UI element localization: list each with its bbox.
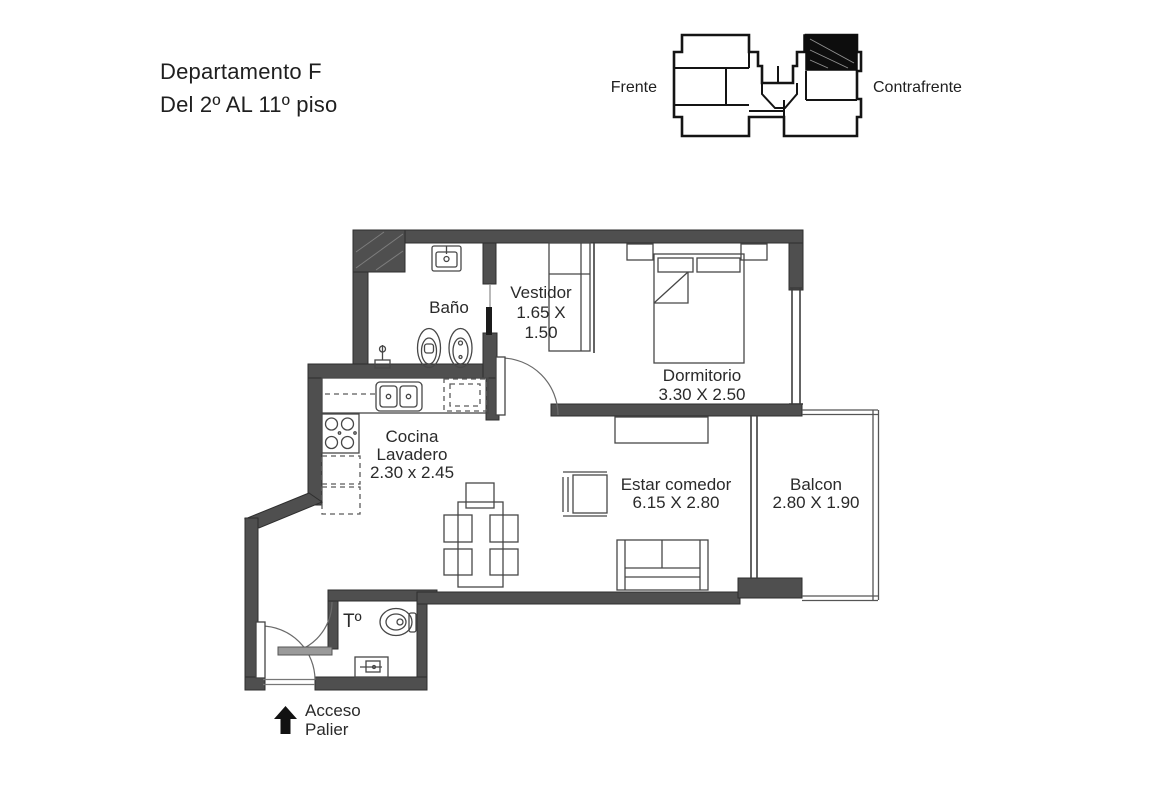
- estar-label: Estar comedor 6.15 X 2.80: [606, 476, 746, 512]
- wall-bath-kitchen: [308, 364, 490, 378]
- tv-cabinet: [615, 417, 708, 443]
- nightstand-left: [627, 244, 653, 260]
- dining-set: [444, 483, 518, 587]
- toilette-fixtures: [355, 609, 416, 678]
- cocina-name1: Cocina: [348, 428, 476, 446]
- toilette-wc-fixture: [380, 609, 416, 636]
- sofa: [617, 540, 708, 590]
- corridor-door-leaf: [496, 357, 505, 415]
- vestidor-dim1: 1.65 X: [489, 303, 593, 323]
- dining-chair: [490, 549, 518, 575]
- cocina-label: Cocina Lavadero 2.30 x 2.45: [348, 428, 476, 482]
- cabinet-dashed-2: [322, 487, 360, 514]
- corridor-door-arc: [501, 358, 558, 415]
- bed: [654, 254, 744, 363]
- wall-kitchen-left: [308, 378, 322, 505]
- access-line1: Acceso: [305, 701, 361, 720]
- access-label: Acceso Palier: [305, 701, 361, 739]
- toilette-label: Tº: [343, 611, 362, 633]
- nightstand-right: [741, 244, 767, 260]
- estar-name: Estar comedor: [606, 476, 746, 494]
- wall-bottom-toilette: [315, 677, 427, 690]
- toilet-fixture: [418, 329, 441, 368]
- entry-door-leaf: [256, 622, 265, 678]
- pillow-right: [697, 258, 740, 272]
- bidet-fixture: [449, 329, 472, 368]
- wall-toilette-left: [328, 601, 338, 649]
- wall-stub-bath-vestidor: [483, 243, 496, 284]
- dormitorio-dims: 3.30 X 2.50: [632, 385, 772, 404]
- wall-balcony-stub: [738, 578, 802, 598]
- bano-label: Baño: [409, 298, 489, 318]
- vestidor-label: Vestidor 1.65 X 1.50: [489, 283, 593, 343]
- wall-dorm-corner: [789, 243, 803, 290]
- kitchen-sink-fixture: [376, 382, 422, 411]
- balcon-dims: 2.80 X 1.90: [749, 494, 883, 512]
- vestidor-name: Vestidor: [489, 283, 593, 303]
- wall-dorm-estar: [551, 404, 802, 416]
- hatched-column: [353, 230, 405, 272]
- wall-toilette-right: [417, 601, 427, 677]
- entry-threshold: [263, 680, 315, 685]
- bath-sink-fixture: [432, 246, 461, 271]
- dining-chair: [466, 483, 494, 508]
- toilette-sink-fixture: [355, 657, 388, 677]
- wall-top: [353, 230, 803, 243]
- dormitorio-window: [789, 288, 803, 404]
- balcon-label: Balcon 2.80 X 1.90: [749, 476, 883, 512]
- access-line2: Palier: [305, 720, 361, 739]
- kitchen-counter: [322, 378, 488, 413]
- balcon-name: Balcon: [749, 476, 883, 494]
- dormitorio-name: Dormitorio: [632, 366, 772, 385]
- dormitorio-label: Dormitorio 3.30 X 2.50: [632, 366, 772, 404]
- access-arrow-icon: [274, 706, 297, 734]
- cocina-name2: Lavadero: [348, 446, 476, 464]
- dining-chair: [490, 515, 518, 542]
- toilette-door-leaf: [278, 647, 332, 655]
- estar-dims: 6.15 X 2.80: [606, 494, 746, 512]
- wall-bottom-left: [245, 677, 265, 690]
- vestidor-dim2: 1.50: [489, 323, 593, 343]
- floorplan-page: Departamento F Del 2º AL 11º piso Frente…: [0, 0, 1170, 785]
- armchair: [563, 472, 607, 516]
- wall-estar-bottom: [417, 592, 740, 604]
- toilette-door-arc: [280, 602, 332, 654]
- cocina-dims: 2.30 x 2.45: [348, 464, 476, 482]
- floor-plan-drawing: [0, 0, 1170, 785]
- blanket-fold: [654, 272, 688, 303]
- pillow-left: [658, 258, 693, 272]
